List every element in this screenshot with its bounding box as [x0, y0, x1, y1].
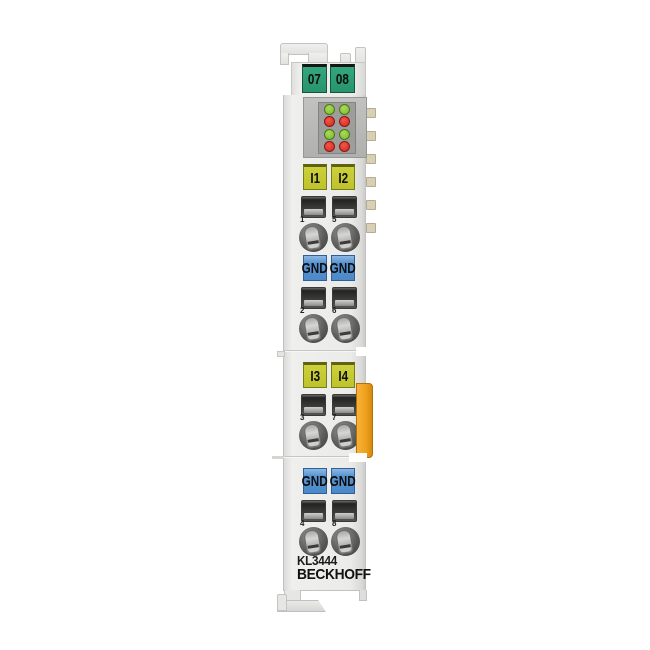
seam-tab	[272, 456, 284, 459]
led-row	[324, 116, 350, 127]
channel-label: I1	[303, 164, 327, 190]
terminal-group-2: GND GND 2 6	[270, 255, 380, 347]
led-recess	[318, 102, 356, 154]
wire-clamp	[331, 527, 360, 556]
release-latch-orange	[356, 383, 373, 458]
status-led	[324, 116, 335, 127]
status-led	[339, 116, 350, 127]
kbus-contact	[366, 108, 376, 118]
seam-notch	[356, 347, 367, 356]
top-hook-tab	[280, 53, 289, 65]
status-led	[339, 104, 350, 115]
status-led	[324, 129, 335, 140]
housing-seam	[284, 350, 365, 352]
terminal-group-4: GND GND 4 8	[270, 468, 380, 560]
wire-clamp	[299, 527, 328, 556]
wire-clamp	[299, 223, 328, 252]
wire-clamp	[331, 223, 360, 252]
bottom-right-leg	[359, 590, 367, 601]
clamp-lever	[303, 225, 322, 251]
address-label: 08	[330, 64, 355, 93]
clamp-lever	[303, 316, 322, 342]
ground-label: GND	[331, 255, 355, 281]
channel-label-text: I3	[310, 368, 320, 385]
brand-logo-text: BECKHOFF	[297, 566, 371, 583]
ground-label-text: GND	[330, 473, 356, 490]
channel-label: I4	[331, 362, 355, 388]
status-led	[324, 141, 335, 152]
address-label: 07	[302, 64, 327, 93]
status-led	[339, 129, 350, 140]
ground-label: GND	[303, 468, 327, 494]
ground-label-text: GND	[330, 260, 356, 277]
status-led	[339, 141, 350, 152]
kl3444-terminal-module: 07 08 I1 I2	[270, 40, 380, 615]
clamp-lever	[303, 529, 322, 555]
led-status-panel	[303, 97, 367, 158]
wire-clamp	[299, 314, 328, 343]
wire-clamp	[299, 421, 328, 450]
clamp-lever	[335, 423, 354, 449]
clamp-lever	[335, 225, 354, 251]
led-row	[324, 141, 350, 152]
channel-label: I3	[303, 362, 327, 388]
clamp-lever	[335, 529, 354, 555]
ground-label-text: GND	[302, 473, 328, 490]
bottom-foot-hook	[277, 594, 287, 611]
channel-label-text: I2	[338, 170, 348, 187]
address-label-text: 07	[308, 71, 321, 88]
clamp-lever	[335, 316, 354, 342]
terminal-group-1: I1 I2 1 5	[270, 164, 380, 256]
seam-tab	[277, 351, 285, 357]
wire-clamp	[331, 314, 360, 343]
channel-label: I2	[331, 164, 355, 190]
status-led	[324, 104, 335, 115]
seam-notch	[349, 453, 367, 462]
ground-label-text: GND	[302, 260, 328, 277]
led-row	[324, 104, 350, 115]
led-row	[324, 129, 350, 140]
clamp-lever	[303, 423, 322, 449]
address-label-text: 08	[336, 71, 349, 88]
kbus-contact	[366, 131, 376, 141]
ground-label: GND	[303, 255, 327, 281]
ground-label: GND	[331, 468, 355, 494]
channel-label-text: I1	[310, 170, 320, 187]
kbus-contact	[366, 154, 376, 164]
channel-label-text: I4	[338, 368, 348, 385]
